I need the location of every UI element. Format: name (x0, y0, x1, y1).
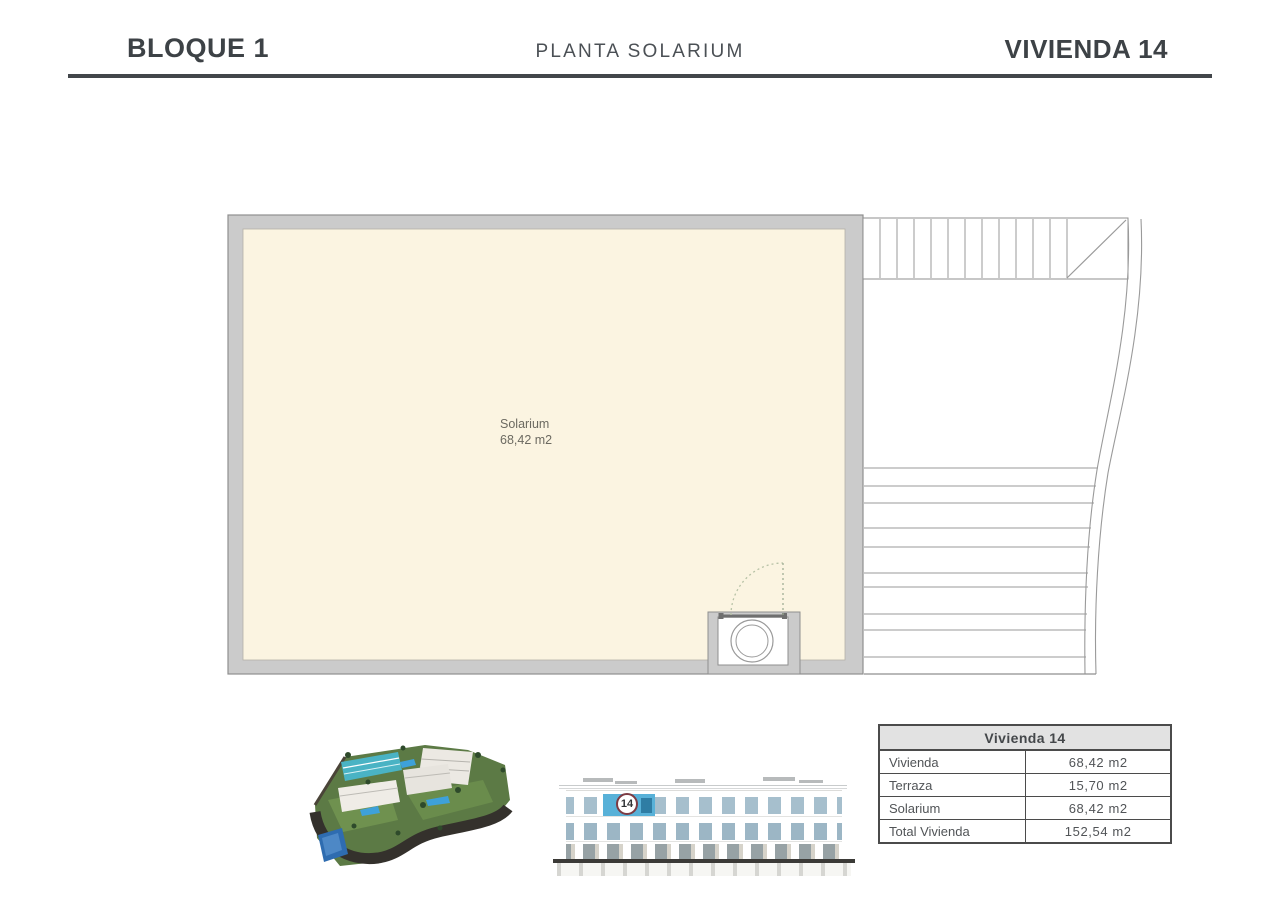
row-label: Vivienda (880, 751, 1026, 773)
summary-table: Vivienda 14 Vivienda 68,42 m2 Terraza 15… (878, 724, 1172, 844)
facade-pier (842, 790, 853, 859)
terrace-steps (864, 468, 1098, 674)
row-label: Solarium (880, 797, 1026, 819)
ground-terrace-strip (557, 863, 851, 876)
shower-alcove (708, 612, 800, 674)
roof-pergola (615, 781, 637, 784)
room-name-label: Solarium (500, 417, 549, 431)
roof-railing (559, 788, 847, 789)
unit-badge-label: 14 (621, 798, 633, 810)
row-value: 68,42 m2 (1026, 797, 1170, 819)
roof-railing (559, 785, 847, 786)
table-row: Vivienda 68,42 m2 (880, 751, 1170, 774)
roof-pergola (675, 779, 705, 783)
unit-window (641, 798, 652, 813)
table-row: Terraza 15,70 m2 (880, 774, 1170, 797)
unit-14-badge: 14 (616, 793, 638, 815)
room-area-label: 68,42 m2 (500, 433, 552, 447)
roof-pergola (799, 780, 823, 783)
row-label: Total Vivienda (880, 820, 1026, 842)
row-label: Terraza (880, 774, 1026, 796)
building-elevation: 14 (553, 772, 857, 890)
page: { "header": { "left_title": "BLOQUE 1", … (0, 0, 1280, 906)
stair-run-top (863, 218, 1128, 279)
row-value: 152,54 m2 (1026, 820, 1170, 842)
table-row: Solarium 68,42 m2 (880, 797, 1170, 820)
roof-pergola (583, 778, 613, 782)
table-row: Total Vivienda 152,54 m2 (880, 820, 1170, 842)
window-band-middle (561, 823, 847, 840)
summary-table-title: Vivienda 14 (880, 726, 1170, 751)
curved-wall (1085, 219, 1142, 674)
window-band-ground (559, 844, 849, 859)
aerial-site-render (308, 740, 518, 872)
row-value: 15,70 m2 (1026, 774, 1170, 796)
floor-slab-line (561, 816, 847, 817)
roof-pergola (763, 777, 795, 781)
floor-slab-line (561, 841, 847, 842)
facade-pier (555, 790, 566, 859)
row-value: 68,42 m2 (1026, 751, 1170, 773)
